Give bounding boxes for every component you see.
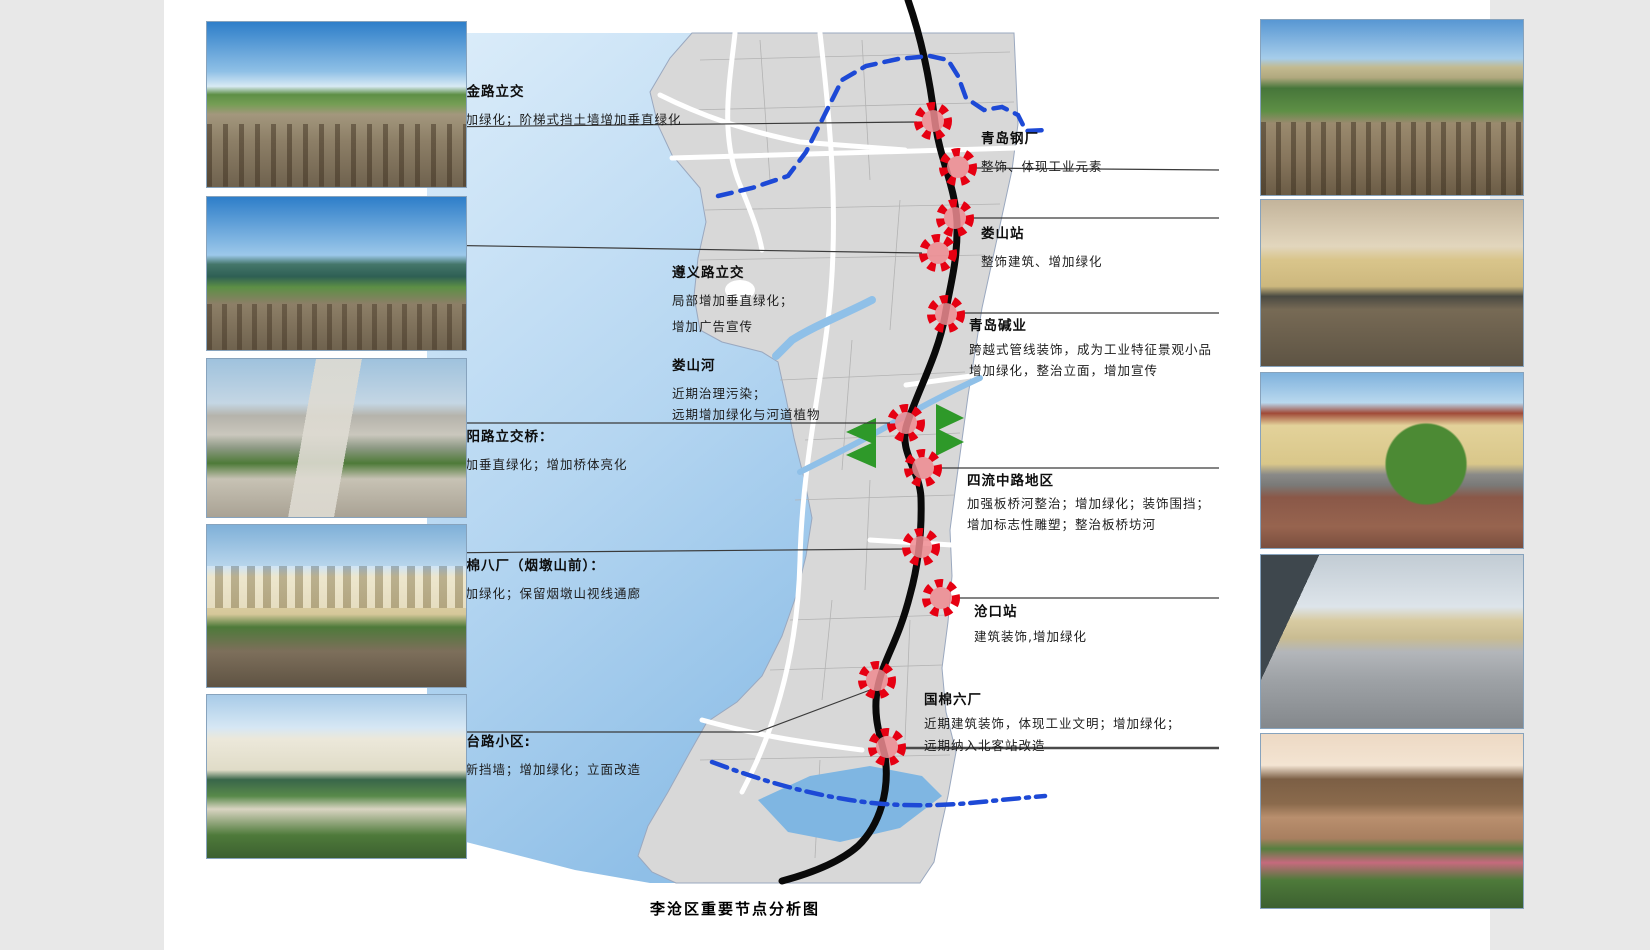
analysis-board: 瑞金路立交 增加绿化；阶梯式挡土墙增加垂直绿化 遵义路立交 局部增加垂直绿化； …: [0, 0, 1650, 950]
photo-fence-flowers: [1260, 733, 1524, 909]
annotation-siliu-road-area: 四流中路地区 加强板桥河整治；增加绿化；装饰围挡； 增加标志性雕塑；整治板桥坊河: [967, 469, 1210, 540]
annotation-title: 遵义路立交: [672, 261, 794, 281]
annotation-line: 建筑装饰,增加绿化: [974, 626, 1087, 645]
photo-heritage-buildings: [1260, 199, 1524, 367]
annotation-guomian-8: 国棉八厂（烟墩山前）： 增加绿化；保留烟墩山视线通廊: [452, 554, 641, 609]
photo-viaduct: [206, 358, 467, 518]
annotation-loushan-river: 娄山河 近期治理污染； 远期增加绿化与河道植物: [672, 354, 821, 430]
annotation-line: 增加标志性雕塑；整治板桥坊河: [967, 514, 1210, 533]
annotation-ruijin-interchange: 瑞金路立交 增加绿化；阶梯式挡土墙增加垂直绿化: [452, 80, 682, 135]
photo-yellow-apartment: [1260, 372, 1524, 549]
annotation-line: 加强板桥河整治；增加绿化；装饰围挡；: [967, 493, 1210, 512]
annotation-title: 沧口站: [974, 600, 1087, 620]
annotation-title: 浏阳路立交桥：: [452, 425, 628, 445]
annotation-line: 整饰、体现工业元素: [981, 156, 1103, 175]
annotation-cangtai-estate: 沧台路小区: 翻新挡墙；增加绿化；立面改造: [452, 730, 641, 785]
photo-gas-holder: [206, 196, 467, 351]
photo-station-platform: [1260, 554, 1524, 729]
annotation-title: 娄山河: [672, 354, 821, 374]
annotation-qingdao-soda: 青岛碱业 跨越式管线装饰，成为工业特征景观小品 增加绿化，整治立面，增加宣传: [969, 314, 1212, 386]
annotation-line: 近期治理污染；: [672, 383, 821, 402]
photo-factory-bridge-tracks: [1260, 19, 1524, 196]
photo-railway-road: [206, 21, 467, 188]
annotation-title: 国棉六厂: [924, 688, 1181, 708]
photo-residential-railway: [206, 524, 467, 688]
annotation-zunyi-interchange: 遵义路立交 局部增加垂直绿化； 增加广告宣传: [672, 261, 794, 342]
annotation-line: 整饰建筑、增加绿化: [981, 251, 1103, 270]
annotation-line: 增加广告宣传: [672, 316, 794, 335]
annotation-guomian-6: 国棉六厂 近期建筑装饰，体现工业文明；增加绿化； 远期纳入北客站改造: [924, 688, 1181, 761]
annotation-title: 国棉八厂（烟墩山前）：: [452, 554, 641, 574]
annotation-title: 娄山站: [981, 222, 1103, 242]
page-title: 李沧区重要节点分析图: [585, 898, 885, 919]
photo-green-roof-buildings: [206, 694, 467, 859]
annotation-liuyang-overpass: 浏阳路立交桥： 增加垂直绿化；增加桥体亮化: [452, 425, 628, 480]
annotation-line: 增加绿化；保留烟墩山视线通廊: [452, 583, 641, 602]
annotation-line: 增加绿化；阶梯式挡土墙增加垂直绿化: [452, 109, 682, 128]
annotation-title: 沧台路小区:: [452, 730, 641, 750]
annotation-title: 青岛碱业: [969, 314, 1212, 334]
annotation-line: 翻新挡墙；增加绿化；立面改造: [452, 759, 641, 778]
annotation-title: 四流中路地区: [967, 469, 1210, 489]
annotation-line: 增加垂直绿化；增加桥体亮化: [452, 454, 628, 473]
annotation-title: 青岛钢厂: [981, 127, 1103, 147]
annotation-cangkou-station: 沧口站 建筑装饰,增加绿化: [974, 600, 1087, 652]
annotation-line: 局部增加垂直绿化；: [672, 290, 794, 309]
annotation-title: 瑞金路立交: [452, 80, 682, 100]
annotation-line: 远期纳入北客站改造: [924, 735, 1181, 754]
annotation-line: 增加绿化，整治立面，增加宣传: [969, 360, 1212, 379]
annotation-loushan-station: 娄山站 整饰建筑、增加绿化: [981, 222, 1103, 277]
annotation-line: 近期建筑装饰，体现工业文明；增加绿化；: [924, 713, 1181, 732]
annotation-line: 远期增加绿化与河道植物: [672, 404, 821, 423]
annotation-qingdao-steel: 青岛钢厂 整饰、体现工业元素: [981, 127, 1103, 182]
annotation-line: 跨越式管线装饰，成为工业特征景观小品: [969, 339, 1212, 358]
